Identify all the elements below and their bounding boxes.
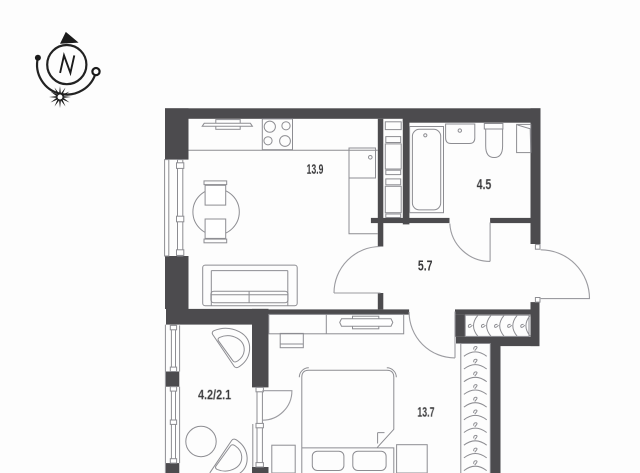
svg-text:13.9: 13.9 [307, 162, 324, 178]
svg-text:13.7: 13.7 [417, 403, 434, 420]
svg-text:4.5: 4.5 [477, 175, 492, 192]
svg-text:4.2/2.1: 4.2/2.1 [198, 387, 231, 403]
svg-text:5.7: 5.7 [418, 257, 433, 274]
